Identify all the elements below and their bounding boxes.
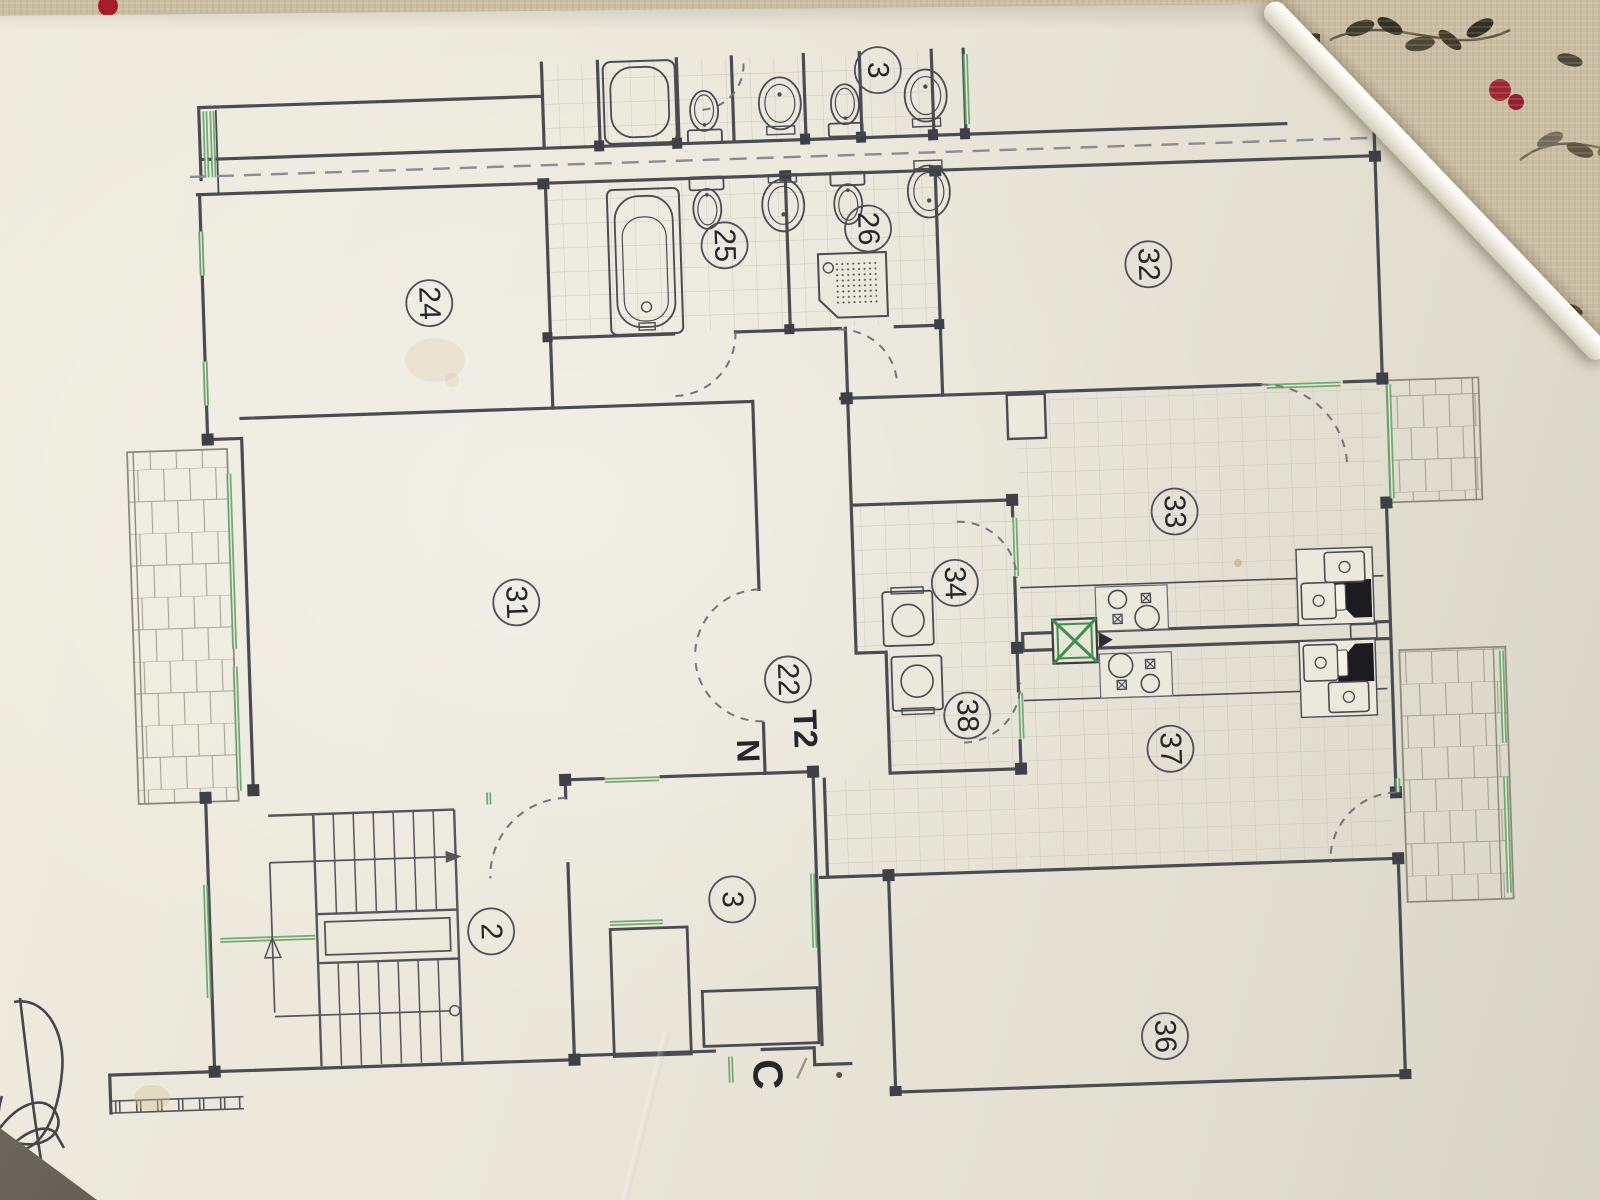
paper-stain — [445, 373, 459, 387]
room-number: 32 — [1131, 247, 1165, 281]
photo-of-floor-plan: 24 25 26 3 3 — [0, 0, 1600, 1200]
room-number: 31 — [499, 585, 533, 619]
paper-sheet: 24 25 26 3 3 — [0, 0, 1600, 1200]
room-number: 36 — [1148, 1019, 1182, 1053]
north-label: N — [730, 739, 767, 763]
floor-plan: 24 25 26 3 3 — [76, 27, 1519, 1122]
counter-passthrough — [1350, 624, 1376, 639]
room-number: 34 — [938, 566, 972, 600]
kitchen-sink-icon — [1296, 547, 1374, 625]
balcony-left — [127, 449, 239, 804]
duct-box — [1007, 394, 1046, 439]
room-number: 24 — [412, 286, 446, 320]
print-mark-slash — [797, 1058, 808, 1078]
room-label-36: 36 — [1141, 1012, 1188, 1059]
room-label-31: 31 — [493, 579, 540, 626]
hob-icon — [1095, 585, 1168, 631]
washing-machine-icon — [891, 655, 943, 715]
unit-type-label: T2 — [786, 709, 824, 749]
balcony-right-bottom — [1399, 647, 1513, 902]
print-mark-dot — [836, 1072, 842, 1078]
room-number: 2 — [474, 923, 508, 941]
room-number: 25 — [707, 228, 741, 262]
room-number: 22 — [771, 662, 805, 696]
balcony-right-top — [1386, 377, 1482, 502]
entrance-label: C — [744, 1058, 792, 1090]
railing-section — [111, 1097, 244, 1113]
shaft-boxes — [610, 923, 819, 1057]
washing-machine-icon — [882, 587, 934, 647]
door-arc — [673, 332, 737, 396]
door-arc — [488, 798, 569, 879]
room-number: 3 — [715, 891, 749, 909]
shower-icon — [818, 252, 888, 318]
stair-direction-arrow — [445, 850, 461, 863]
room-label-22: 22 — [764, 656, 811, 703]
room-label-32: 32 — [1125, 241, 1172, 288]
room-number: 37 — [1153, 732, 1187, 766]
paper-speck — [1234, 559, 1242, 567]
room-label-24: 24 — [406, 279, 453, 326]
kitchen-sink-icon — [1299, 639, 1377, 717]
double-door-arc — [695, 655, 763, 723]
hob-icon — [1099, 652, 1172, 698]
room-label-2: 2 — [467, 908, 514, 955]
floor-plan-drawing: 24 25 26 3 3 — [0, 0, 1600, 1200]
room-number: 26 — [851, 211, 885, 245]
paper-stain — [134, 1085, 170, 1111]
tiled-floors — [543, 38, 1394, 884]
room-label-3: 3 — [708, 876, 755, 923]
room-number: 33 — [1158, 494, 1192, 528]
room-number: 3 — [861, 61, 895, 79]
room-number: 38 — [950, 698, 984, 732]
double-door-arc — [693, 589, 761, 657]
